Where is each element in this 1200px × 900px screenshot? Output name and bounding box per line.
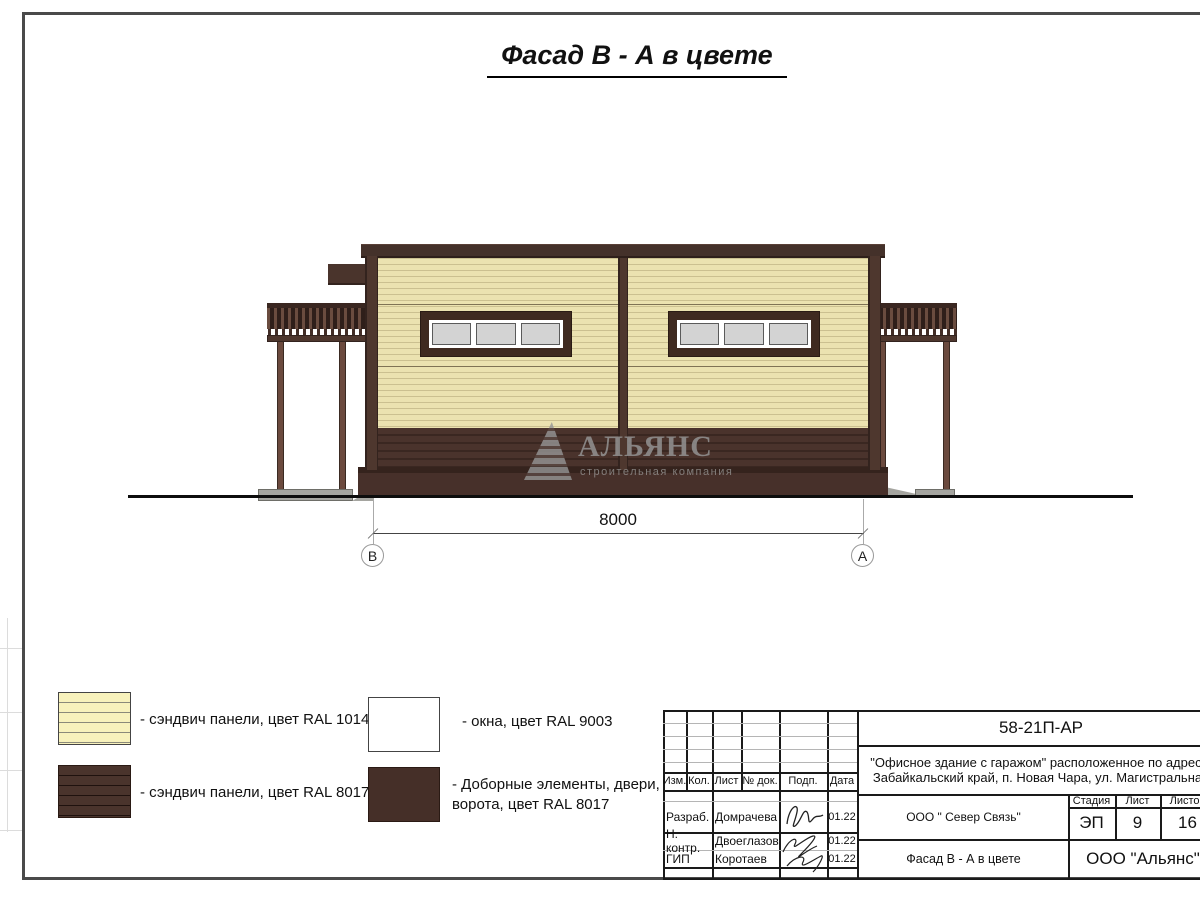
stamp-border-bottom: [663, 878, 1200, 880]
canopy-left-band: [267, 303, 368, 329]
stamp-company: ООО "Альянс": [1068, 839, 1200, 878]
dimension-line: [373, 533, 864, 534]
stamp-sheet-header: Лист: [1115, 794, 1160, 807]
stamp-faint-line: [663, 736, 857, 737]
stamp-role-nkontr: Н. контр.: [666, 832, 712, 850]
corner-column-right: [868, 256, 881, 470]
axis-circle-b: В: [361, 544, 384, 567]
stamp-name-domracheva: Домрачева: [715, 801, 779, 832]
page-title: Фасад В - А в цвете: [437, 40, 837, 78]
cornice: [361, 244, 885, 258]
stamp-col-list: Лист: [712, 772, 741, 790]
stamp-drawing-title: Фасад В - А в цвете: [859, 839, 1068, 878]
dimension-value: 8000: [558, 510, 678, 530]
stamp-stage-value: ЭП: [1068, 807, 1115, 839]
binding-tick: [0, 712, 22, 713]
frame-top: [22, 12, 1200, 15]
window-pane: [680, 323, 719, 345]
window-pane: [724, 323, 763, 345]
window-pane: [432, 323, 471, 345]
stamp-sheets-header: Листов: [1160, 794, 1200, 807]
canopy-left-post-inner: [339, 342, 346, 490]
window-pane: [476, 323, 515, 345]
stamp-col-podp: Подп.: [779, 772, 827, 790]
axis-circle-a: А: [851, 544, 874, 567]
window-left: [420, 311, 572, 357]
drawing-sheet: Фасад В - А в цвете: [0, 0, 1200, 900]
stamp-date: 01.22: [827, 832, 857, 850]
stamp-faint-line: [663, 723, 857, 724]
stamp-project: "Офисное здание с гаражом" расположенное…: [861, 745, 1200, 794]
center-divider: [618, 258, 628, 470]
window-right-sash: [677, 320, 811, 348]
stamp-doc-number: 58-21П-АР: [859, 710, 1200, 745]
window-left-sash: [429, 320, 563, 348]
stamp-sheets-value: 16: [1160, 807, 1200, 839]
legend-label-ral8017-panels: - сэндвич панели, цвет RAL 8017: [140, 783, 369, 803]
stamp-grid-line: [663, 790, 857, 792]
binding-margin-line: [7, 618, 8, 832]
corner-column-left: [365, 256, 378, 470]
signature-icon: [779, 832, 827, 876]
title-block: Изм. Кол. Лист № док. Подп. Дата Разраб.…: [663, 710, 1200, 880]
canopy-right-post-outer: [943, 342, 950, 489]
window-pane: [521, 323, 560, 345]
stamp-project-line2: Забайкальский край, п. Новая Чара, ул. М…: [873, 770, 1200, 785]
stamp-stage-header: Стадия: [1068, 794, 1115, 807]
extension-line-b: [373, 499, 374, 544]
stamp-faint-line: [663, 762, 857, 763]
ground-line: [128, 495, 1133, 498]
canopy-right-band: [876, 303, 957, 329]
stamp-faint-line: [663, 749, 857, 750]
stamp-date: 01.22: [827, 850, 857, 867]
window-right: [668, 311, 820, 357]
stamp-date: 01.22: [827, 801, 857, 832]
binding-tick: [0, 830, 22, 831]
stamp-grid-line: [663, 867, 857, 869]
window-pane: [769, 323, 808, 345]
legend-swatch-ral8017-panels: [58, 765, 131, 818]
canopy-left-beam: [267, 335, 368, 342]
stamp-organization: ООО " Север Связь": [859, 794, 1068, 839]
legend-label-ral1014: - сэндвич панели, цвет RAL 1014: [140, 710, 369, 730]
legend-swatch-ral1014: [58, 692, 131, 745]
stamp-name-korotaev: Коротаев: [715, 850, 779, 867]
legend-label-ral9003: - окна, цвет RAL 9003: [462, 712, 612, 732]
legend-swatch-ral8017-elements: [368, 767, 440, 822]
binding-tick: [0, 648, 22, 649]
stamp-sheet-value: 9: [1115, 807, 1160, 839]
frame-left: [22, 12, 25, 880]
base-plinth: [358, 473, 888, 497]
canopy-right-beam: [876, 335, 957, 342]
legend-label-ral8017-elements: - Доборные элементы, двери, ворота, цвет…: [452, 775, 670, 816]
stamp-name-dvoeglazov: Двоеглазов: [715, 832, 779, 850]
legend-swatch-ral9003: [368, 697, 440, 752]
canopy-left-post-outer: [277, 342, 284, 490]
binding-tick: [0, 770, 22, 771]
extension-line-a: [863, 499, 864, 544]
stamp-col-izm: Изм.: [663, 772, 686, 790]
stamp-col-data: Дата: [827, 772, 857, 790]
stamp-role-gip: ГИП: [666, 850, 712, 867]
stamp-col-kol: Кол.: [686, 772, 712, 790]
stamp-project-line1: "Офисное здание с гаражом" расположенное…: [870, 755, 1200, 770]
stamp-col-doc: № док.: [741, 772, 779, 790]
signature-icon: [781, 798, 827, 834]
